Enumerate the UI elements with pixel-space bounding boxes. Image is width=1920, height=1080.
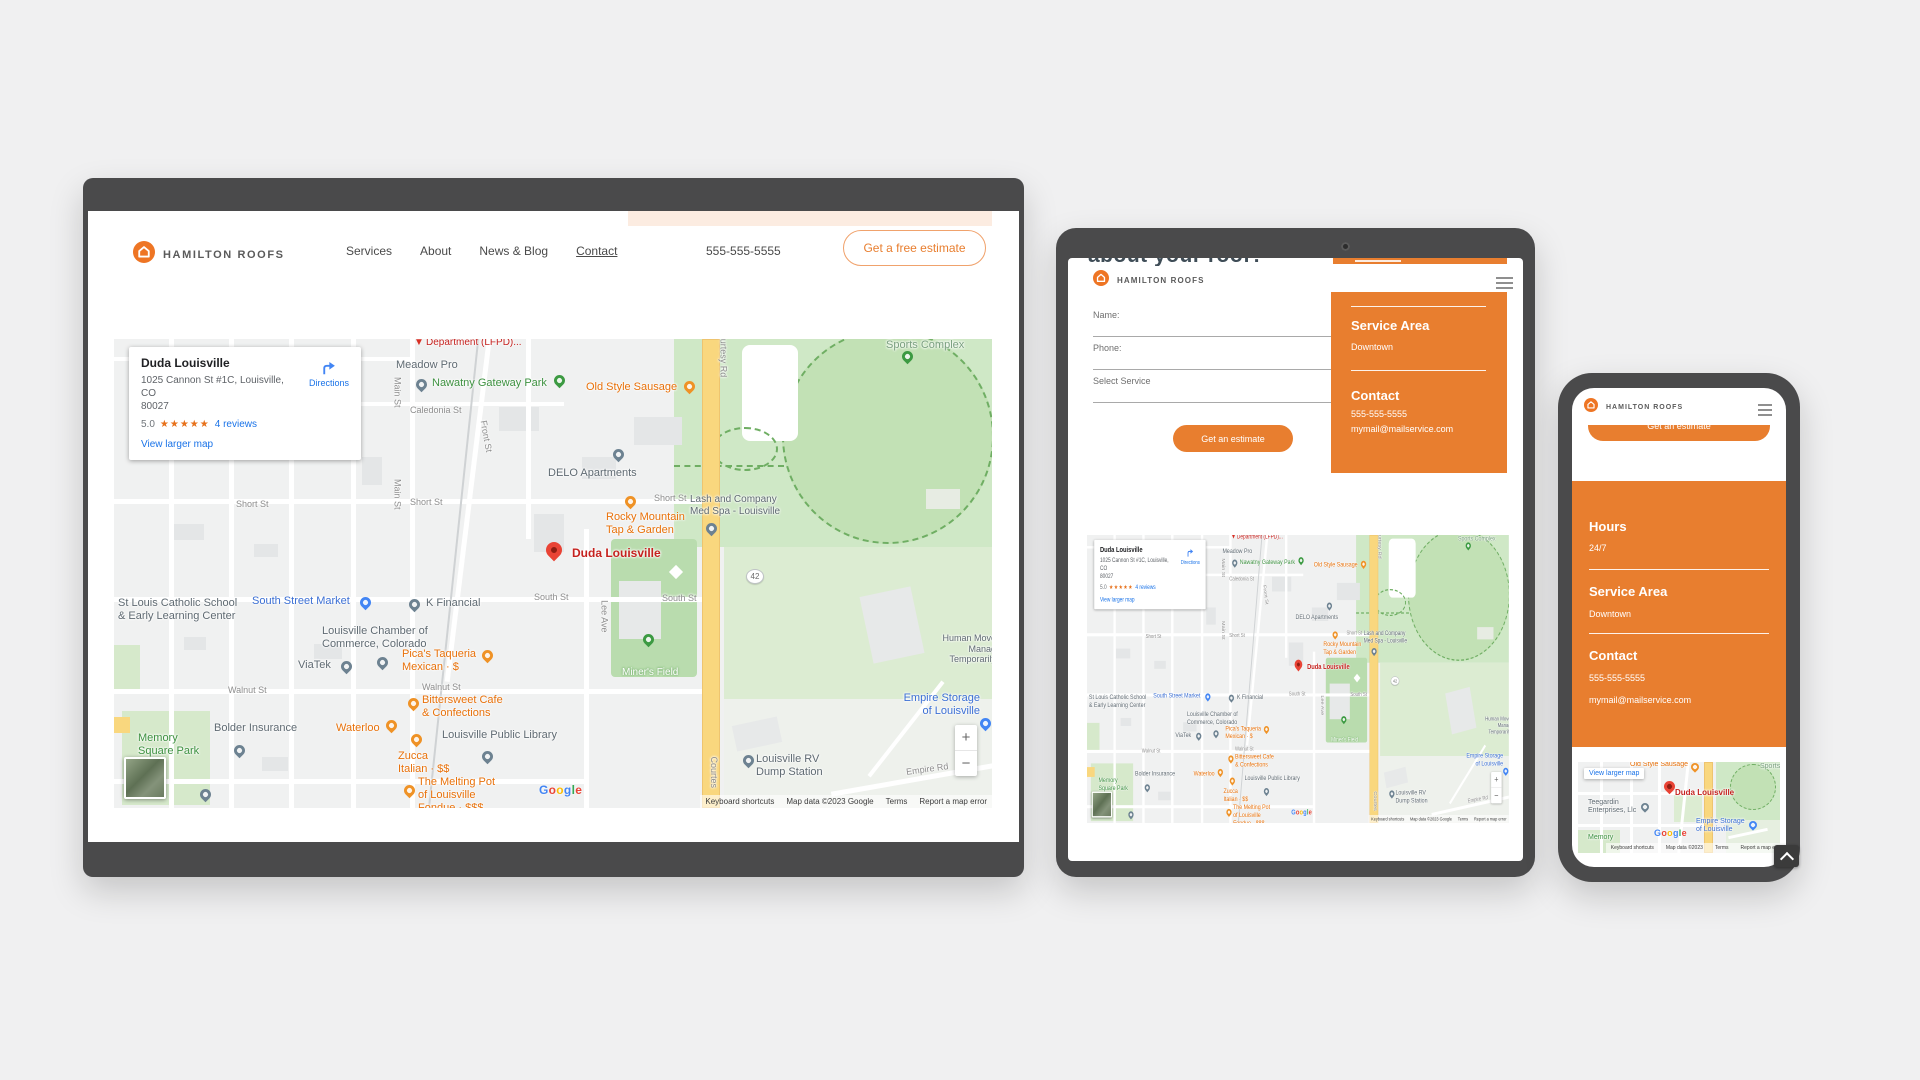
- map-shape: [445, 339, 493, 682]
- name-label: Name:: [1093, 310, 1120, 320]
- service-area-value: Downtown: [1589, 609, 1631, 619]
- main-nav: Services About News & Blog Contact: [346, 244, 617, 258]
- phone-label: Phone:: [1093, 343, 1122, 353]
- map-label: Lee Ave: [1320, 695, 1325, 715]
- map-shape: [702, 339, 720, 808]
- brand-name: HAMILTON ROOFS: [1117, 276, 1205, 285]
- attribution-item[interactable]: Terms: [886, 797, 908, 806]
- rating-stars: ★★★★★: [1109, 584, 1133, 591]
- zoom-in-button[interactable]: +: [1491, 772, 1502, 787]
- map-shape: [1272, 577, 1291, 592]
- hours-title: Hours: [1589, 519, 1627, 534]
- desktop-screen: HAMILTON ROOFS Services About News & Blo…: [88, 211, 1019, 842]
- tablet-screen: about your roof? HAMILTON ROOFS Name: Ph…: [1068, 258, 1523, 861]
- map-label: Zucca Italian · $$: [1223, 787, 1248, 803]
- map-pin[interactable]: [552, 373, 568, 389]
- map-shape: [1380, 663, 1509, 756]
- map-shape: [114, 499, 704, 504]
- reviews-link[interactable]: 4 reviews: [1135, 584, 1155, 591]
- map-pin[interactable]: [1331, 630, 1338, 640]
- map-label: ViaTek: [298, 659, 331, 672]
- map-shape: [254, 544, 278, 557]
- map-label: Louisville Public Library: [442, 729, 557, 742]
- info-panel: Service Area Downtown Contact 555-555-55…: [1331, 292, 1507, 473]
- desktop-header: HAMILTON ROOFS Services About News & Blo…: [88, 211, 1019, 306]
- divider: [1589, 633, 1769, 634]
- map-attribution: Keyboard shortcutsMap data ©2023TermsRep…: [1606, 843, 1780, 853]
- map-label: Bittersweet Cafe & Confections: [1235, 753, 1274, 769]
- service-area-value: Downtown: [1351, 342, 1393, 352]
- map-shape: [1578, 792, 1708, 795]
- attribution-item[interactable]: Report a map e: [1741, 845, 1775, 851]
- hours-value: 24/7: [1589, 543, 1607, 553]
- map-shape: [1154, 661, 1166, 669]
- map-label: Louisville Public Library: [1245, 774, 1300, 782]
- zoom-control: +−: [1491, 772, 1502, 803]
- map-pin[interactable]: [1217, 768, 1224, 778]
- map-pin[interactable]: [1212, 729, 1219, 739]
- map-attribution: Keyboard shortcutsMap data ©2023 GoogleT…: [700, 795, 992, 808]
- map-label: Waterloo: [1194, 770, 1215, 778]
- brand-logo[interactable]: HAMILTON ROOFS: [1584, 398, 1683, 417]
- attribution-item[interactable]: Keyboard shortcuts: [1371, 816, 1404, 822]
- map-shape: [1730, 764, 1776, 810]
- contact-email[interactable]: mymail@mailservice.com: [1589, 695, 1691, 705]
- google-logo: Google: [1291, 808, 1312, 817]
- map-shape: [724, 547, 992, 699]
- google-map-phone[interactable]: Old Style SausageSportsDuda LouisvilleTe…: [1578, 762, 1780, 853]
- clipped-orange-section: [1333, 258, 1507, 264]
- brand-logo[interactable]: HAMILTON ROOFS: [133, 241, 285, 268]
- clipped-estimate-button[interactable]: Get an estimate: [1588, 425, 1770, 441]
- contact-title: Contact: [1351, 388, 1399, 403]
- map-shape: [584, 529, 589, 808]
- map-pin[interactable]: [414, 377, 430, 393]
- tablet-camera: [1341, 242, 1350, 251]
- scroll-to-top-button[interactable]: [1774, 845, 1799, 867]
- brand-name: HAMILTON ROOFS: [163, 249, 285, 261]
- map-pin[interactable]: [375, 655, 391, 671]
- map-shape: [1370, 535, 1379, 823]
- phone-input[interactable]: [1093, 353, 1369, 370]
- map-shape: [362, 457, 382, 485]
- map-shape: [1087, 767, 1095, 777]
- rating-row: 5.0★★★★★4 reviews: [141, 419, 349, 430]
- zoom-control: +−: [955, 725, 977, 776]
- map-shape: [114, 779, 584, 784]
- brand-logo[interactable]: HAMILTON ROOFS: [1093, 270, 1205, 291]
- map-label: Department (LFPD)...: [1237, 535, 1283, 541]
- nav-about[interactable]: About: [420, 244, 451, 258]
- free-estimate-button[interactable]: Get a free estimate: [843, 230, 986, 266]
- map-pin[interactable]: [480, 648, 496, 664]
- attribution-item[interactable]: Keyboard shortcuts: [705, 797, 774, 806]
- zoom-in-button[interactable]: +: [955, 725, 977, 750]
- map-shape: [1313, 652, 1315, 823]
- map-shape: [114, 689, 704, 694]
- rating-value: 5.0: [141, 419, 155, 430]
- directions-link[interactable]: Directions: [1181, 547, 1200, 565]
- map-shape: [1236, 535, 1263, 823]
- contact-email[interactable]: mymail@mailservice.com: [1351, 424, 1453, 434]
- brand-name: HAMILTON ROOFS: [1606, 404, 1683, 411]
- tablet-mockup: about your roof? HAMILTON ROOFS Name: Ph…: [1056, 228, 1535, 877]
- attribution-item: Map data ©2023: [1666, 845, 1703, 851]
- map-label: Bittersweet Cafe & Confections: [422, 694, 503, 720]
- map-shape: [619, 581, 661, 639]
- google-map-tablet[interactable]: Department (LFPD)...Meadow ProNawatny Ga…: [1087, 535, 1509, 823]
- phone-mockup: HAMILTON ROOFS Get an estimate Hours 24/…: [1558, 373, 1800, 882]
- map-shape: [184, 637, 206, 650]
- map-shape: [1116, 649, 1130, 659]
- map-shape: [674, 465, 784, 467]
- view-larger-map-link[interactable]: View larger map: [1100, 596, 1200, 603]
- map-shape: [174, 524, 204, 540]
- map-shape: [1121, 718, 1132, 726]
- service-area-title: Service Area: [1351, 318, 1429, 333]
- map-shape: [526, 339, 531, 539]
- attribution-item[interactable]: Keyboard shortcuts: [1611, 845, 1654, 851]
- service-select[interactable]: [1093, 386, 1369, 403]
- map-info-card: Duda Louisville1025 Cannon St #1C, Louis…: [1094, 540, 1205, 609]
- attribution-item[interactable]: Report a map error: [919, 797, 987, 806]
- street-view-thumbnail[interactable]: [124, 757, 166, 799]
- map-shape: [499, 407, 539, 431]
- service-area-title: Service Area: [1589, 584, 1667, 599]
- zoom-out-button[interactable]: −: [1491, 787, 1502, 803]
- map-shape: [1312, 607, 1328, 621]
- brand-logo-icon: [1093, 270, 1109, 291]
- brand-logo-icon: [1584, 398, 1598, 417]
- get-estimate-button[interactable]: Get an estimate: [1173, 425, 1293, 452]
- attribution-item: Map data ©2023 Google: [1410, 816, 1452, 822]
- map-shape: [1330, 684, 1350, 720]
- map-pin[interactable]: [1263, 725, 1270, 735]
- map-shape: [582, 457, 616, 479]
- map-pin-flag[interactable]: ▼: [1231, 535, 1236, 541]
- map-label: Caledonia St: [410, 405, 462, 416]
- rating-stars: ★★★★★: [160, 419, 210, 430]
- name-input[interactable]: [1093, 320, 1369, 337]
- map-pin[interactable]: [1639, 801, 1650, 812]
- menu-icon[interactable]: [1758, 401, 1772, 419]
- map-label: Bolder Insurance: [214, 722, 297, 735]
- map-shape: [1087, 723, 1099, 752]
- nav-news-blog[interactable]: News & Blog: [479, 244, 548, 258]
- view-larger-map-link[interactable]: View larger map: [141, 439, 349, 450]
- map-pin[interactable]: [1144, 783, 1151, 793]
- zoom-out-button[interactable]: −: [955, 750, 977, 776]
- map-shape: [354, 402, 564, 406]
- header-phone-number[interactable]: 555-555-5555: [706, 244, 781, 258]
- contact-phone[interactable]: 555-555-5555: [1351, 409, 1407, 419]
- map-shape: [1578, 824, 1708, 827]
- map-shape: [114, 717, 130, 733]
- phone-screen: HAMILTON ROOFS Get an estimate Hours 24/…: [1572, 388, 1786, 867]
- reviews-link[interactable]: 4 reviews: [215, 419, 257, 430]
- map-pin[interactable]: [1263, 787, 1270, 797]
- attribution-item[interactable]: Terms: [1458, 816, 1468, 822]
- map-pin[interactable]: [232, 743, 248, 759]
- map-label: Department (LFPD)...: [426, 339, 522, 349]
- map-shape: [634, 417, 682, 445]
- place-address: 1025 Cannon St #1C, Louisville, CO80027: [141, 374, 301, 413]
- map-info-card: Duda Louisville1025 Cannon St #1C, Louis…: [129, 347, 361, 460]
- map-shape: [1477, 627, 1493, 639]
- map-label: Main St: [1221, 621, 1226, 640]
- map-pin-flag[interactable]: ▼: [414, 339, 424, 348]
- google-map-desktop[interactable]: Department (LFPD)...Meadow ProNawatny Ga…: [114, 339, 992, 808]
- map-attribution: Keyboard shortcutsMap data ©2023 GoogleT…: [1369, 815, 1509, 823]
- map-label: Bolder Insurance: [1135, 770, 1175, 778]
- info-panel: Hours 24/7 Service Area Downtown Contact…: [1572, 481, 1786, 747]
- divider: [1351, 370, 1486, 371]
- divider: [1589, 569, 1769, 570]
- map-shape: [1206, 607, 1216, 624]
- map-pin[interactable]: [1231, 558, 1238, 568]
- map-shape: [114, 645, 140, 693]
- attribution-item[interactable]: Report a map error: [1474, 816, 1506, 822]
- contact-phone[interactable]: 555-555-5555: [1589, 673, 1645, 683]
- map-label: Teegardin Enterprises, Llc: [1588, 799, 1636, 816]
- street-view-thumbnail[interactable]: [1092, 792, 1112, 818]
- map-shape: [1158, 792, 1170, 801]
- place-address: 1025 Cannon St #1C, Louisville, CO80027: [1100, 556, 1177, 580]
- map-shape: [1704, 762, 1713, 853]
- map-shape: [1408, 535, 1509, 661]
- map-shape: [314, 644, 342, 659]
- google-logo: Google: [539, 783, 582, 797]
- map-pin[interactable]: [480, 749, 496, 765]
- map-label: Caledonia St: [1229, 576, 1254, 583]
- map-shape: [1202, 574, 1303, 576]
- nav-services[interactable]: Services: [346, 244, 392, 258]
- map-pin[interactable]: [1689, 762, 1700, 773]
- menu-icon[interactable]: [1496, 274, 1513, 292]
- map-shape: [782, 339, 992, 544]
- attribution-item[interactable]: Terms: [1715, 845, 1729, 851]
- view-larger-map-button[interactable]: View larger map: [1584, 768, 1644, 779]
- map-label: Old Style Sausage: [586, 381, 677, 394]
- map-shape: [1246, 535, 1269, 746]
- map-label: Zucca Italian · $$: [398, 750, 449, 776]
- map-label: ViaTek: [1175, 731, 1191, 739]
- map-label: Main St: [392, 479, 403, 510]
- map-shape: [425, 339, 481, 808]
- map-shape: [1674, 794, 1702, 822]
- map-label: Waterloo: [336, 722, 380, 735]
- map-pin[interactable]: [406, 696, 422, 712]
- map-pin[interactable]: [623, 494, 639, 510]
- contact-title: Contact: [1589, 648, 1637, 663]
- service-label: Select Service: [1093, 376, 1151, 386]
- desktop-mockup: HAMILTON ROOFS Services About News & Blo…: [83, 178, 1024, 877]
- map-shape: [1183, 722, 1196, 731]
- nav-contact[interactable]: Contact: [576, 244, 617, 258]
- brand-logo-icon: [133, 241, 155, 268]
- attribution-item: Map data ©2023 Google: [786, 797, 873, 806]
- map-shape: [262, 757, 288, 771]
- divider: [1351, 306, 1486, 307]
- map-shape: [1356, 612, 1409, 613]
- map-shape: [1285, 535, 1287, 658]
- map-shape: [1337, 583, 1360, 600]
- map-label: Lee Ave: [599, 600, 610, 632]
- rating-row: 5.0★★★★★4 reviews: [1100, 584, 1200, 591]
- map-shape: [1087, 633, 1370, 636]
- map-pin[interactable]: [384, 718, 400, 734]
- directions-link[interactable]: Directions: [309, 359, 349, 388]
- rating-value: 5.0: [1100, 584, 1107, 591]
- map-shape: [1087, 805, 1313, 808]
- google-logo: Google: [1654, 828, 1687, 838]
- map-label: Old Style Sausage: [1314, 561, 1358, 569]
- map-shape: [1658, 762, 1661, 853]
- map-pin[interactable]: [1297, 556, 1304, 566]
- map-shape: [926, 489, 960, 509]
- map-shape: [1087, 750, 1370, 753]
